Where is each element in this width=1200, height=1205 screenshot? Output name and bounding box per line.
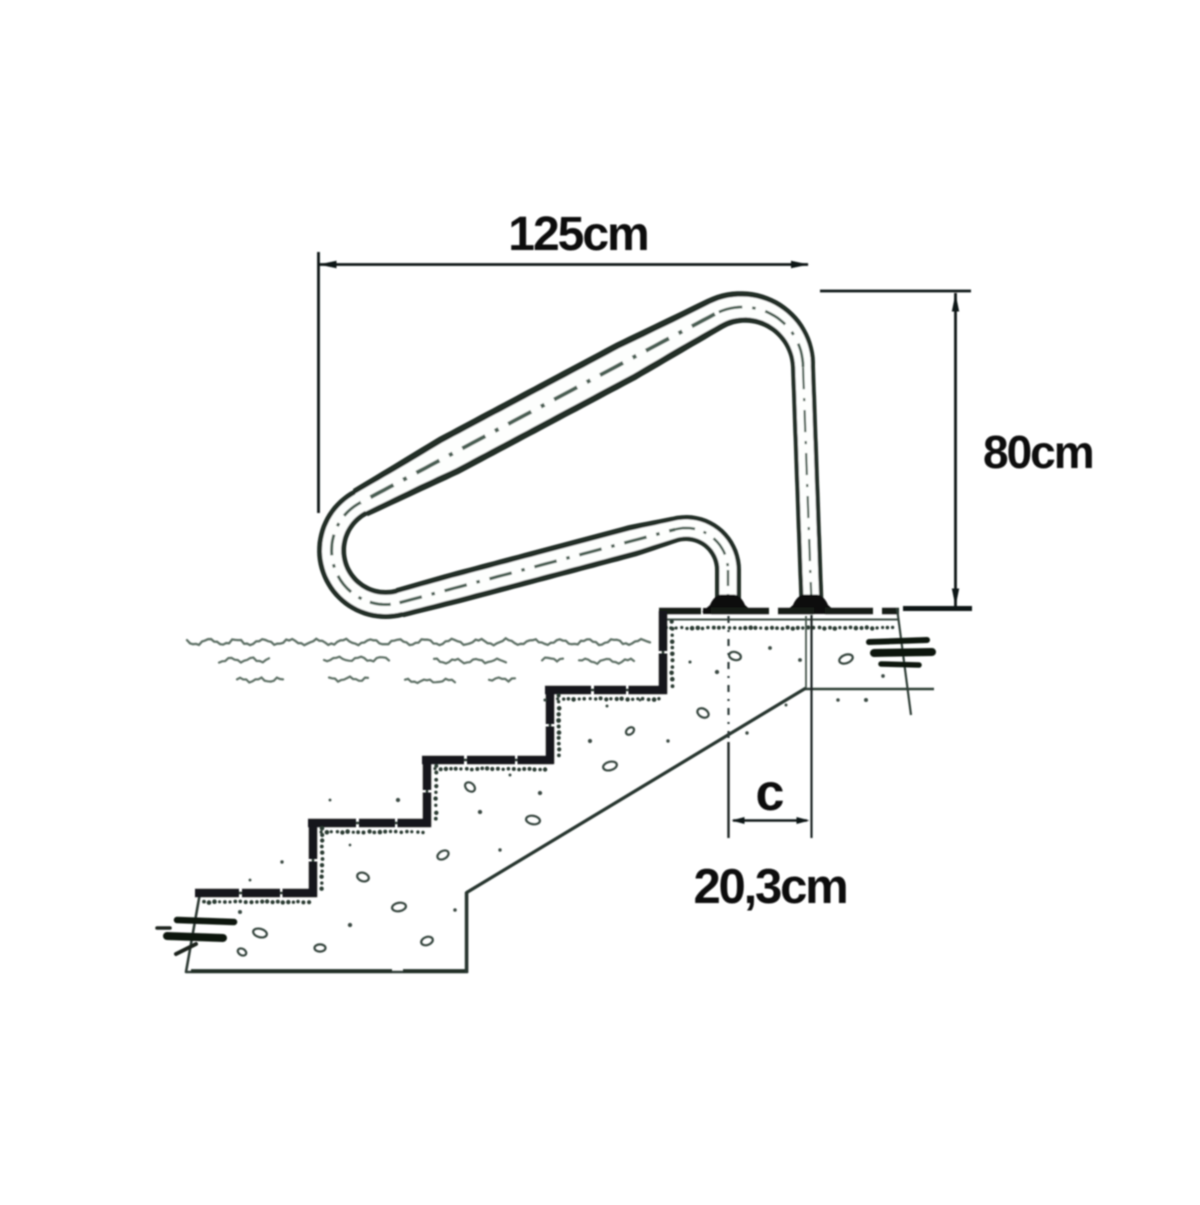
svg-text:80cm: 80cm: [983, 426, 1093, 478]
svg-text:c: c: [756, 764, 785, 822]
svg-text:125cm: 125cm: [508, 208, 647, 261]
svg-text:20,3cm: 20,3cm: [694, 860, 847, 914]
